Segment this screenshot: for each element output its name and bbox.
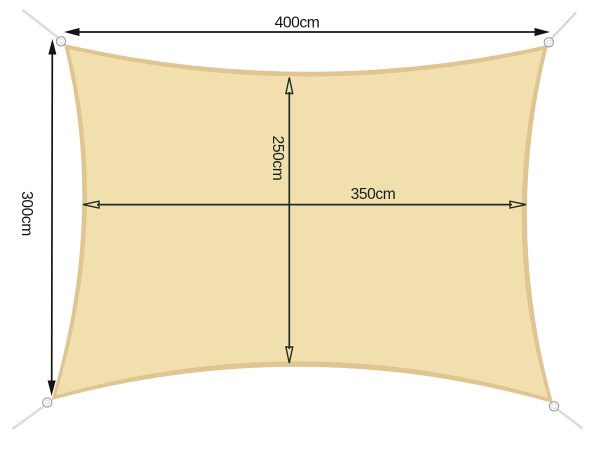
svg-text:400cm: 400cm [275, 15, 320, 32]
svg-text:250cm: 250cm [269, 136, 286, 181]
svg-text:350cm: 350cm [351, 186, 396, 203]
svg-text:300cm: 300cm [18, 191, 35, 236]
